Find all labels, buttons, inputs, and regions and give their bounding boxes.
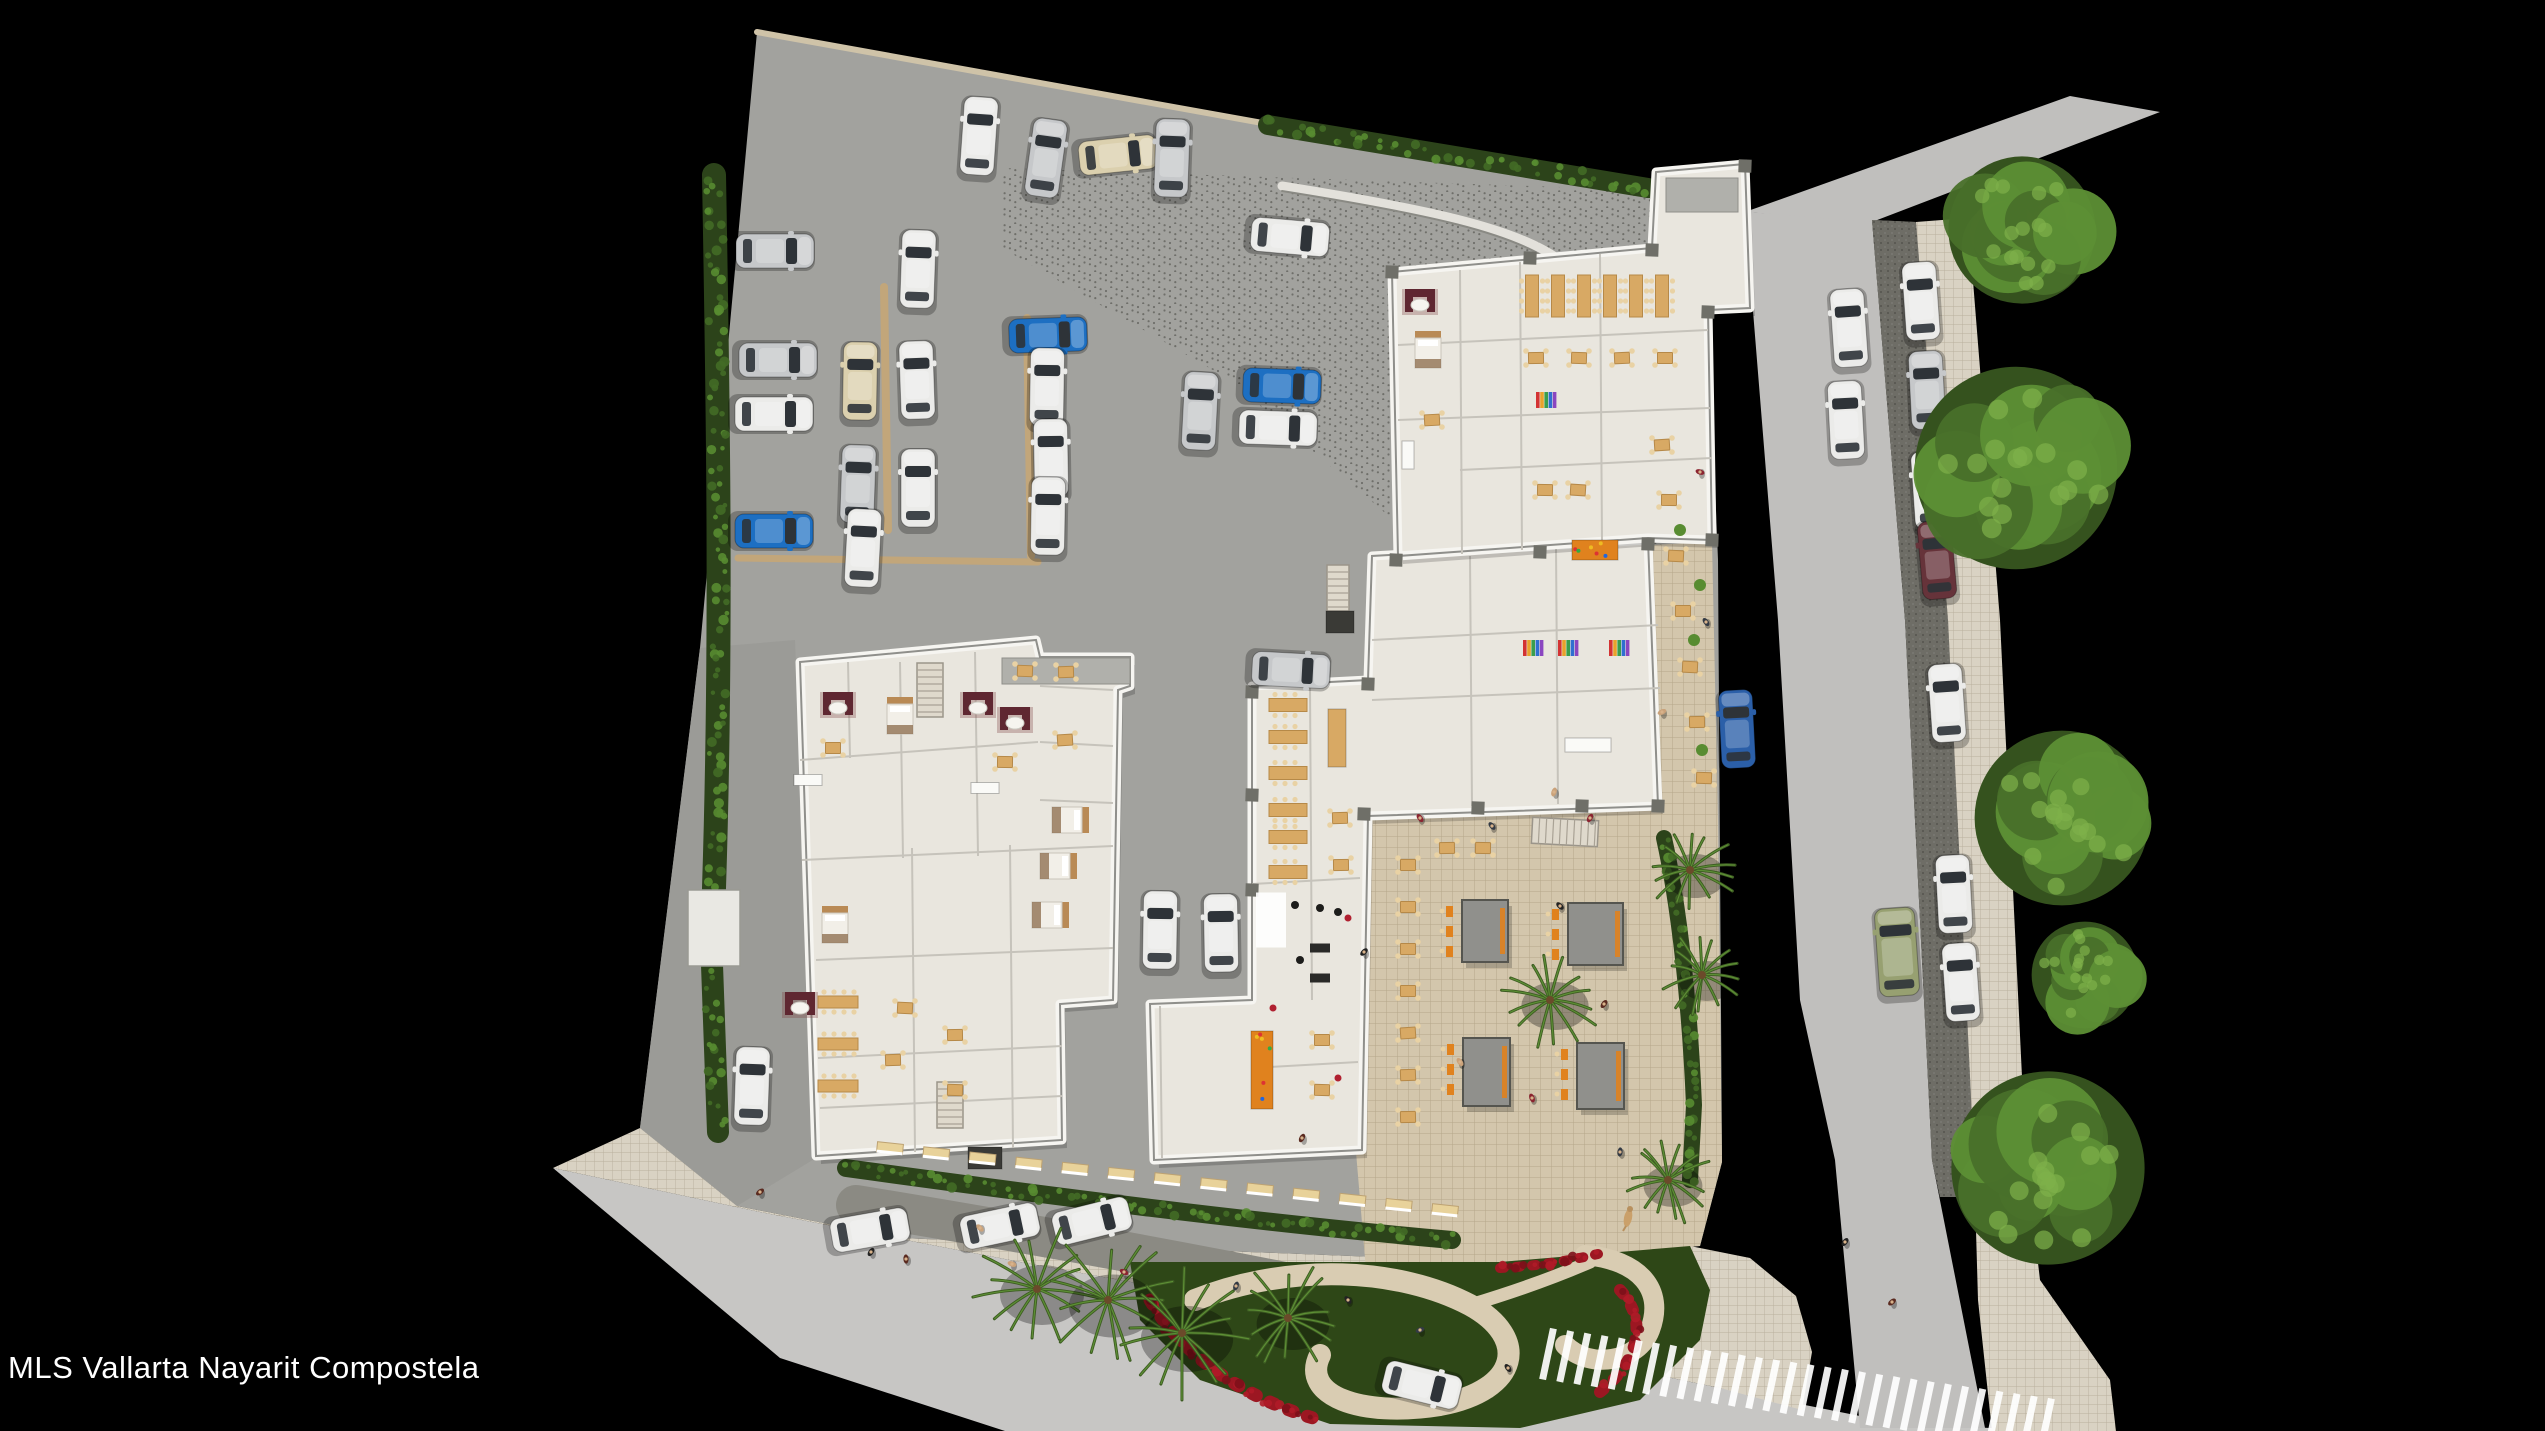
hedge-leaf — [717, 465, 724, 472]
car — [1242, 213, 1331, 260]
hedge-leaf — [714, 798, 724, 808]
hedge-leaf — [1008, 1194, 1013, 1199]
sofa-set — [997, 707, 1033, 733]
hedge-leaf — [1277, 129, 1283, 135]
structural-column — [1471, 801, 1484, 814]
structural-column — [1533, 545, 1546, 558]
hedge-leaf — [1376, 1223, 1385, 1232]
hedge-leaf — [1687, 1060, 1694, 1067]
hedge-leaf — [1282, 1219, 1291, 1228]
hedge-leaf — [1431, 155, 1440, 164]
site-wall — [688, 890, 740, 966]
hedge-leaf — [707, 737, 717, 747]
treadmill — [1310, 944, 1330, 953]
car — [730, 1045, 773, 1132]
hedge-leaf — [722, 584, 730, 592]
bed — [887, 697, 913, 734]
hedge-leaf — [1583, 1255, 1588, 1260]
hedge-leaf — [1376, 144, 1382, 150]
hedge-leaf — [704, 188, 711, 195]
hedge-leaf — [1556, 163, 1563, 170]
gym-accent — [1335, 1075, 1342, 1082]
treadmill — [1310, 974, 1330, 983]
structural-column — [1651, 799, 1664, 812]
hedge-leaf — [1305, 1218, 1314, 1227]
hedge-leaf — [1640, 189, 1648, 197]
staircase — [917, 663, 943, 717]
car — [1027, 476, 1068, 563]
hedge-leaf — [1389, 1226, 1396, 1233]
hedge-leaf — [1322, 1221, 1329, 1228]
car — [839, 341, 880, 428]
hedge-leaf — [1215, 1217, 1220, 1222]
car — [1178, 370, 1222, 458]
hedge-leaf — [1433, 1235, 1439, 1241]
structural-column — [1357, 807, 1370, 820]
hedge-leaf — [720, 370, 726, 376]
shrub — [1674, 524, 1686, 536]
watermark-label: MLS Vallarta Nayarit Compostela — [8, 1350, 480, 1386]
hedge-leaf — [712, 654, 719, 661]
hedge-leaf — [1234, 1379, 1244, 1389]
hedge-leaf — [1599, 1379, 1608, 1388]
hedge-leaf — [1308, 1415, 1313, 1420]
aerial-site-plan: MLS Vallarta Nayarit Compostela — [0, 0, 2545, 1431]
hedge-leaf — [717, 220, 726, 229]
bed — [822, 906, 848, 943]
hedge-leaf — [707, 482, 716, 491]
hedge-leaf — [1411, 140, 1420, 149]
hedge-leaf — [715, 348, 723, 356]
gym-equipment — [1334, 908, 1342, 916]
hedge-leaf — [1329, 1231, 1336, 1238]
hedge-leaf — [1575, 1253, 1580, 1258]
hedge-leaf — [709, 406, 718, 415]
hedge-leaf — [1138, 1206, 1146, 1214]
sofa-set — [782, 992, 818, 1018]
hedge-leaf — [718, 1057, 724, 1063]
gym-equipment — [1316, 904, 1324, 912]
hedge-leaf — [1203, 1213, 1211, 1221]
car — [732, 340, 818, 380]
hedge-leaf — [1685, 1098, 1694, 1107]
hedge-leaf — [1222, 1376, 1231, 1385]
sofa-set — [960, 692, 996, 718]
hedge-leaf — [1422, 147, 1427, 152]
hedge-leaf — [720, 446, 725, 451]
food-item — [1603, 554, 1607, 558]
hedge-leaf — [704, 1067, 713, 1076]
bed — [1040, 853, 1077, 879]
shrub — [1696, 744, 1708, 756]
hedge-leaf — [1553, 1259, 1558, 1264]
hedge-leaf — [1074, 1193, 1081, 1200]
hedge-leaf — [1619, 1288, 1626, 1295]
hedge-leaf — [1486, 156, 1494, 164]
hedge-leaf — [890, 1168, 896, 1174]
hedge-leaf — [705, 864, 713, 872]
hedge-leaf — [1159, 1201, 1167, 1209]
hedge-leaf — [1498, 1261, 1507, 1270]
structural-column — [1641, 537, 1654, 550]
hedge-leaf — [1454, 156, 1463, 165]
car — [728, 394, 814, 434]
counter — [794, 775, 822, 786]
hedge-leaf — [722, 569, 727, 574]
hedge-leaf — [710, 831, 715, 836]
hedge-leaf — [721, 689, 730, 698]
hedge-leaf — [707, 394, 713, 400]
hedge-leaf — [709, 183, 716, 190]
hedge-leaf — [1691, 1077, 1699, 1085]
structural-column — [1738, 159, 1751, 172]
hedge-leaf — [1018, 1193, 1024, 1199]
hedge-leaf — [717, 275, 727, 285]
hedge-leaf — [877, 1165, 885, 1173]
food-item — [1261, 1081, 1265, 1085]
hedge-leaf — [1336, 139, 1341, 144]
hedge-leaf — [1081, 1194, 1087, 1200]
hedge-leaf — [713, 673, 719, 679]
hedge-leaf — [721, 430, 729, 438]
hedge-leaf — [1340, 1231, 1346, 1237]
hedge-leaf — [1350, 130, 1357, 137]
hedge-leaf — [1132, 1202, 1137, 1207]
hedge-leaf — [1554, 172, 1562, 180]
hedge-leaf — [1429, 1232, 1434, 1237]
food-item — [1258, 1033, 1262, 1037]
hedge-leaf — [1594, 1249, 1599, 1254]
structural-column — [1245, 788, 1258, 801]
car — [1932, 853, 1976, 941]
hedge-leaf — [1532, 159, 1539, 166]
display-shelf — [1558, 640, 1578, 656]
hedge-leaf — [719, 235, 728, 244]
food-item — [1260, 1037, 1264, 1041]
hedge-leaf — [1353, 139, 1363, 149]
hedge-leaf — [714, 307, 722, 315]
hedge-leaf — [1535, 172, 1540, 177]
hedge-leaf — [713, 1000, 720, 1007]
gym-mat — [1256, 893, 1286, 948]
hedge-leaf — [715, 667, 720, 672]
hedge-leaf — [719, 1122, 725, 1128]
hedge-leaf — [1245, 1211, 1255, 1221]
hedge-leaf — [866, 1164, 870, 1168]
hedge-leaf — [715, 1104, 720, 1109]
hedge-leaf — [1621, 1371, 1626, 1376]
hedge-leaf — [1199, 1211, 1204, 1216]
hedge-leaf — [718, 535, 728, 545]
sofa-set — [820, 692, 856, 718]
hedge-leaf — [899, 1171, 904, 1176]
hedge-leaf — [1295, 1411, 1301, 1417]
parking-divider-1 — [738, 558, 1038, 562]
structural-column — [1389, 553, 1402, 566]
hedge-leaf — [1511, 1264, 1520, 1273]
hedge-leaf — [711, 691, 715, 695]
hedge-leaf — [1622, 1362, 1630, 1370]
hedge-leaf — [720, 720, 726, 726]
hedge-leaf — [709, 975, 715, 981]
hedge-leaf — [1629, 187, 1636, 194]
car — [1871, 906, 1924, 1005]
hedge-leaf — [720, 711, 728, 719]
hedge-leaf — [1509, 161, 1518, 170]
food-item — [1260, 1097, 1264, 1101]
hedge-leaf — [1270, 1223, 1275, 1228]
hedge-leaf — [1223, 1211, 1229, 1217]
hedge-leaf — [1409, 1236, 1415, 1242]
hedge-leaf — [721, 557, 728, 564]
hedge-leaf — [963, 1174, 972, 1183]
car — [896, 339, 939, 426]
food-item — [1576, 549, 1580, 553]
hedge-leaf — [1292, 130, 1302, 140]
hedge-leaf — [1392, 141, 1399, 148]
hedge-leaf — [1450, 1231, 1456, 1237]
hedge-leaf — [716, 845, 723, 852]
hedge-leaf — [708, 468, 714, 474]
hedge-leaf — [716, 752, 725, 761]
hedge-leaf — [725, 611, 730, 616]
hedge-leaf — [853, 1165, 859, 1171]
gym-equipment — [1296, 956, 1304, 964]
car — [841, 507, 885, 595]
hedge-leaf — [715, 731, 722, 738]
hedge-leaf — [705, 317, 713, 325]
hedge-leaf — [1005, 1186, 1011, 1192]
hedge-leaf — [990, 1182, 996, 1188]
display-shelf — [1523, 640, 1543, 656]
hedge-leaf — [716, 1068, 725, 1077]
hedge-leaf — [1684, 1035, 1693, 1044]
car — [1150, 117, 1193, 204]
hedge-leaf — [709, 1014, 715, 1020]
hedge-leaf — [911, 1181, 916, 1186]
hedge-leaf — [1632, 1308, 1637, 1313]
hedge-leaf — [716, 190, 723, 197]
hedge-leaf — [1692, 1135, 1697, 1140]
hedge-leaf — [903, 1170, 908, 1175]
hedge-leaf — [716, 867, 726, 877]
hedge-leaf — [1691, 1069, 1698, 1076]
roof-slab — [1666, 178, 1738, 212]
shrub — [1694, 579, 1706, 591]
hedge-leaf — [717, 341, 723, 347]
bed — [1052, 807, 1089, 833]
hedge-leaf — [1466, 159, 1475, 168]
counter — [1402, 441, 1414, 469]
hedge-leaf — [1591, 176, 1596, 181]
car — [1924, 662, 1970, 751]
food-item — [1255, 1035, 1259, 1039]
hedge-leaf — [1243, 1391, 1249, 1397]
structural-column — [1701, 305, 1714, 318]
hedge-leaf — [711, 268, 719, 276]
staircase — [1327, 565, 1349, 611]
hedge-leaf — [707, 445, 716, 454]
site-plan-rendering — [0, 0, 2545, 1431]
structural-column — [1361, 677, 1374, 690]
hedge-leaf — [1532, 1262, 1537, 1267]
hedge-leaf — [1693, 1085, 1699, 1091]
hedge-leaf — [1560, 1257, 1569, 1266]
hedge-leaf — [1578, 166, 1587, 175]
hedge-leaf — [1249, 1388, 1254, 1393]
counter — [1565, 738, 1611, 752]
hedge-leaf — [710, 644, 716, 650]
hedge-leaf — [711, 493, 720, 502]
hedge-leaf — [1267, 116, 1275, 124]
hedge-leaf — [1441, 1240, 1451, 1250]
hedge-leaf — [718, 615, 728, 625]
hedge-leaf — [1235, 1213, 1242, 1220]
hedge-leaf — [1613, 181, 1618, 186]
hedge-leaf — [1045, 1194, 1050, 1199]
hedge-leaf — [711, 384, 718, 391]
hedge-leaf — [1308, 131, 1315, 138]
hedge-leaf — [723, 599, 729, 605]
hedge-leaf — [721, 813, 728, 820]
hedge-leaf — [1378, 138, 1383, 143]
bed — [1032, 902, 1069, 928]
car — [1938, 941, 1984, 1030]
hedge-leaf — [1313, 1417, 1318, 1422]
hedge-leaf — [1154, 1207, 1162, 1215]
car — [1898, 260, 1944, 349]
food-item — [1589, 545, 1593, 549]
hedge-leaf — [1630, 1335, 1636, 1341]
hedge-leaf — [876, 1175, 881, 1180]
hedge-leaf — [1693, 1094, 1698, 1099]
hedge-leaf — [1265, 1400, 1272, 1407]
car — [1824, 379, 1868, 467]
hedge-leaf — [965, 1183, 970, 1188]
hedge-leaf — [711, 583, 721, 593]
hedge-leaf — [723, 503, 728, 508]
hedge-leaf — [1034, 1196, 1043, 1205]
food-item — [1599, 541, 1603, 545]
hedge-leaf — [1568, 177, 1576, 185]
hedge-leaf — [708, 843, 714, 849]
hedge-leaf — [713, 768, 723, 778]
hedge-leaf — [1677, 943, 1682, 948]
hedge-leaf — [1299, 124, 1306, 131]
food-item — [1595, 552, 1599, 556]
hedge-leaf — [1519, 1261, 1527, 1269]
hedge-leaf — [933, 1174, 943, 1184]
hedge-leaf — [722, 524, 728, 530]
hedge-leaf — [1291, 1221, 1296, 1226]
hedge-leaf — [1684, 1116, 1694, 1126]
hedge-leaf — [1258, 1222, 1263, 1227]
hedge-leaf — [704, 221, 714, 231]
car — [896, 228, 939, 315]
hedge-leaf — [917, 1173, 923, 1179]
hedge-leaf — [1683, 1026, 1691, 1034]
display-shelf — [1609, 640, 1629, 656]
hedge-leaf — [705, 252, 711, 258]
hedge-leaf — [716, 547, 720, 551]
hedge-leaf — [1289, 1407, 1295, 1413]
car — [728, 511, 814, 551]
hedge-leaf — [1443, 153, 1452, 162]
hedge-leaf — [991, 1189, 997, 1195]
hedge-leaf — [1351, 1231, 1357, 1237]
hedge-leaf — [708, 1101, 713, 1106]
hedge-leaf — [1666, 837, 1671, 842]
hedge-leaf — [947, 1182, 957, 1192]
gym-accent — [1345, 915, 1352, 922]
structural-column — [1575, 799, 1588, 812]
hedge-leaf — [720, 327, 728, 335]
hedge-leaf — [712, 596, 720, 604]
hedge-leaf — [719, 356, 729, 366]
hedge-leaf — [712, 1029, 720, 1037]
hedge-leaf — [708, 262, 713, 267]
hedge-leaf — [716, 1016, 723, 1023]
hedge-leaf — [707, 751, 712, 756]
hedge-leaf — [711, 428, 717, 434]
hedge-leaf — [942, 1179, 947, 1184]
display-shelf — [1536, 392, 1556, 408]
sofa-set — [1402, 289, 1438, 315]
hedge-leaf — [1190, 1209, 1197, 1216]
hedge-leaf — [712, 245, 722, 255]
hedge-leaf — [717, 481, 723, 487]
hedge-leaf — [1400, 1228, 1408, 1236]
hedge-leaf — [708, 968, 714, 974]
hedge-leaf — [1365, 1227, 1372, 1234]
hedge-leaf — [1685, 1130, 1692, 1137]
hedge-leaf — [713, 787, 721, 795]
car — [1826, 287, 1872, 376]
hedge-leaf — [704, 986, 709, 991]
hedge-leaf — [719, 704, 725, 710]
gym-equipment — [1291, 901, 1299, 909]
hedge-leaf — [709, 1043, 717, 1051]
structural-column — [1385, 265, 1398, 278]
hedge-leaf — [1499, 157, 1505, 163]
hedge-leaf — [1404, 150, 1411, 157]
structural-column — [1705, 533, 1718, 546]
bed — [1415, 331, 1441, 368]
car — [898, 448, 938, 534]
hedge-leaf — [1687, 1045, 1692, 1050]
hedge-leaf — [1354, 1224, 1362, 1232]
hedge-leaf — [1581, 178, 1589, 186]
hedge-leaf — [702, 1005, 710, 1013]
hedge-leaf — [713, 515, 718, 520]
hedge-leaf — [1266, 1221, 1271, 1226]
hedge-leaf — [1167, 1204, 1172, 1209]
hedge-leaf — [716, 832, 726, 842]
hedge-leaf — [704, 208, 711, 215]
structural-column — [1645, 243, 1658, 256]
hedge-leaf — [982, 1180, 987, 1185]
car — [1244, 648, 1332, 692]
hedge-leaf — [716, 626, 723, 633]
car — [1200, 893, 1241, 980]
car — [956, 95, 1002, 184]
shrub — [1688, 634, 1700, 646]
car — [1715, 688, 1759, 776]
counter — [1328, 709, 1346, 767]
car — [1235, 364, 1322, 407]
car — [1231, 406, 1318, 449]
parking-divider-3 — [884, 287, 888, 530]
